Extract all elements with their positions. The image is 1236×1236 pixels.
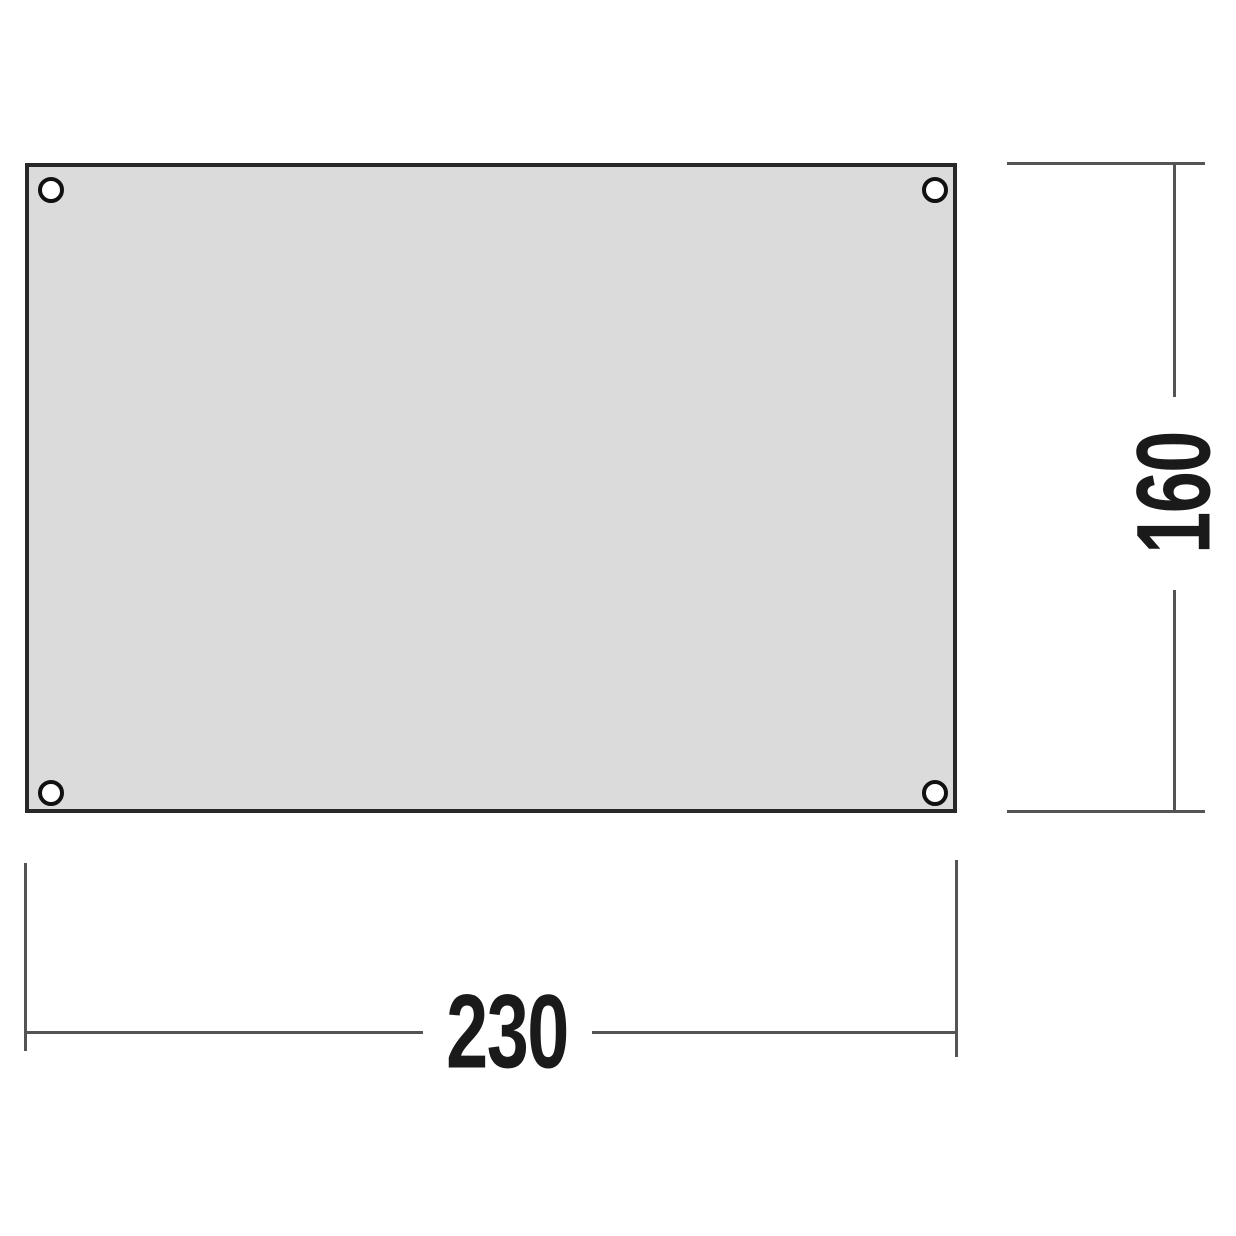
width-dimension-line-left-segment	[25, 1031, 423, 1034]
width-extension-line-left	[24, 863, 27, 1051]
height-dimension-label: 160	[1122, 432, 1227, 554]
height-dimension-line-lower-segment	[1173, 590, 1176, 813]
panel-face	[25, 163, 957, 813]
width-dimension-line-right-segment	[592, 1031, 957, 1034]
mounting-hole-bottom-right	[922, 780, 948, 806]
dimension-drawing: 160 230	[0, 0, 1236, 1236]
width-dimension-label: 230	[446, 980, 568, 1085]
height-dimension-line-upper-segment	[1173, 163, 1176, 397]
mounting-hole-bottom-left	[38, 780, 64, 806]
width-extension-line-right	[955, 860, 958, 1057]
mounting-hole-top-left	[38, 177, 64, 203]
mounting-hole-top-right	[922, 177, 948, 203]
